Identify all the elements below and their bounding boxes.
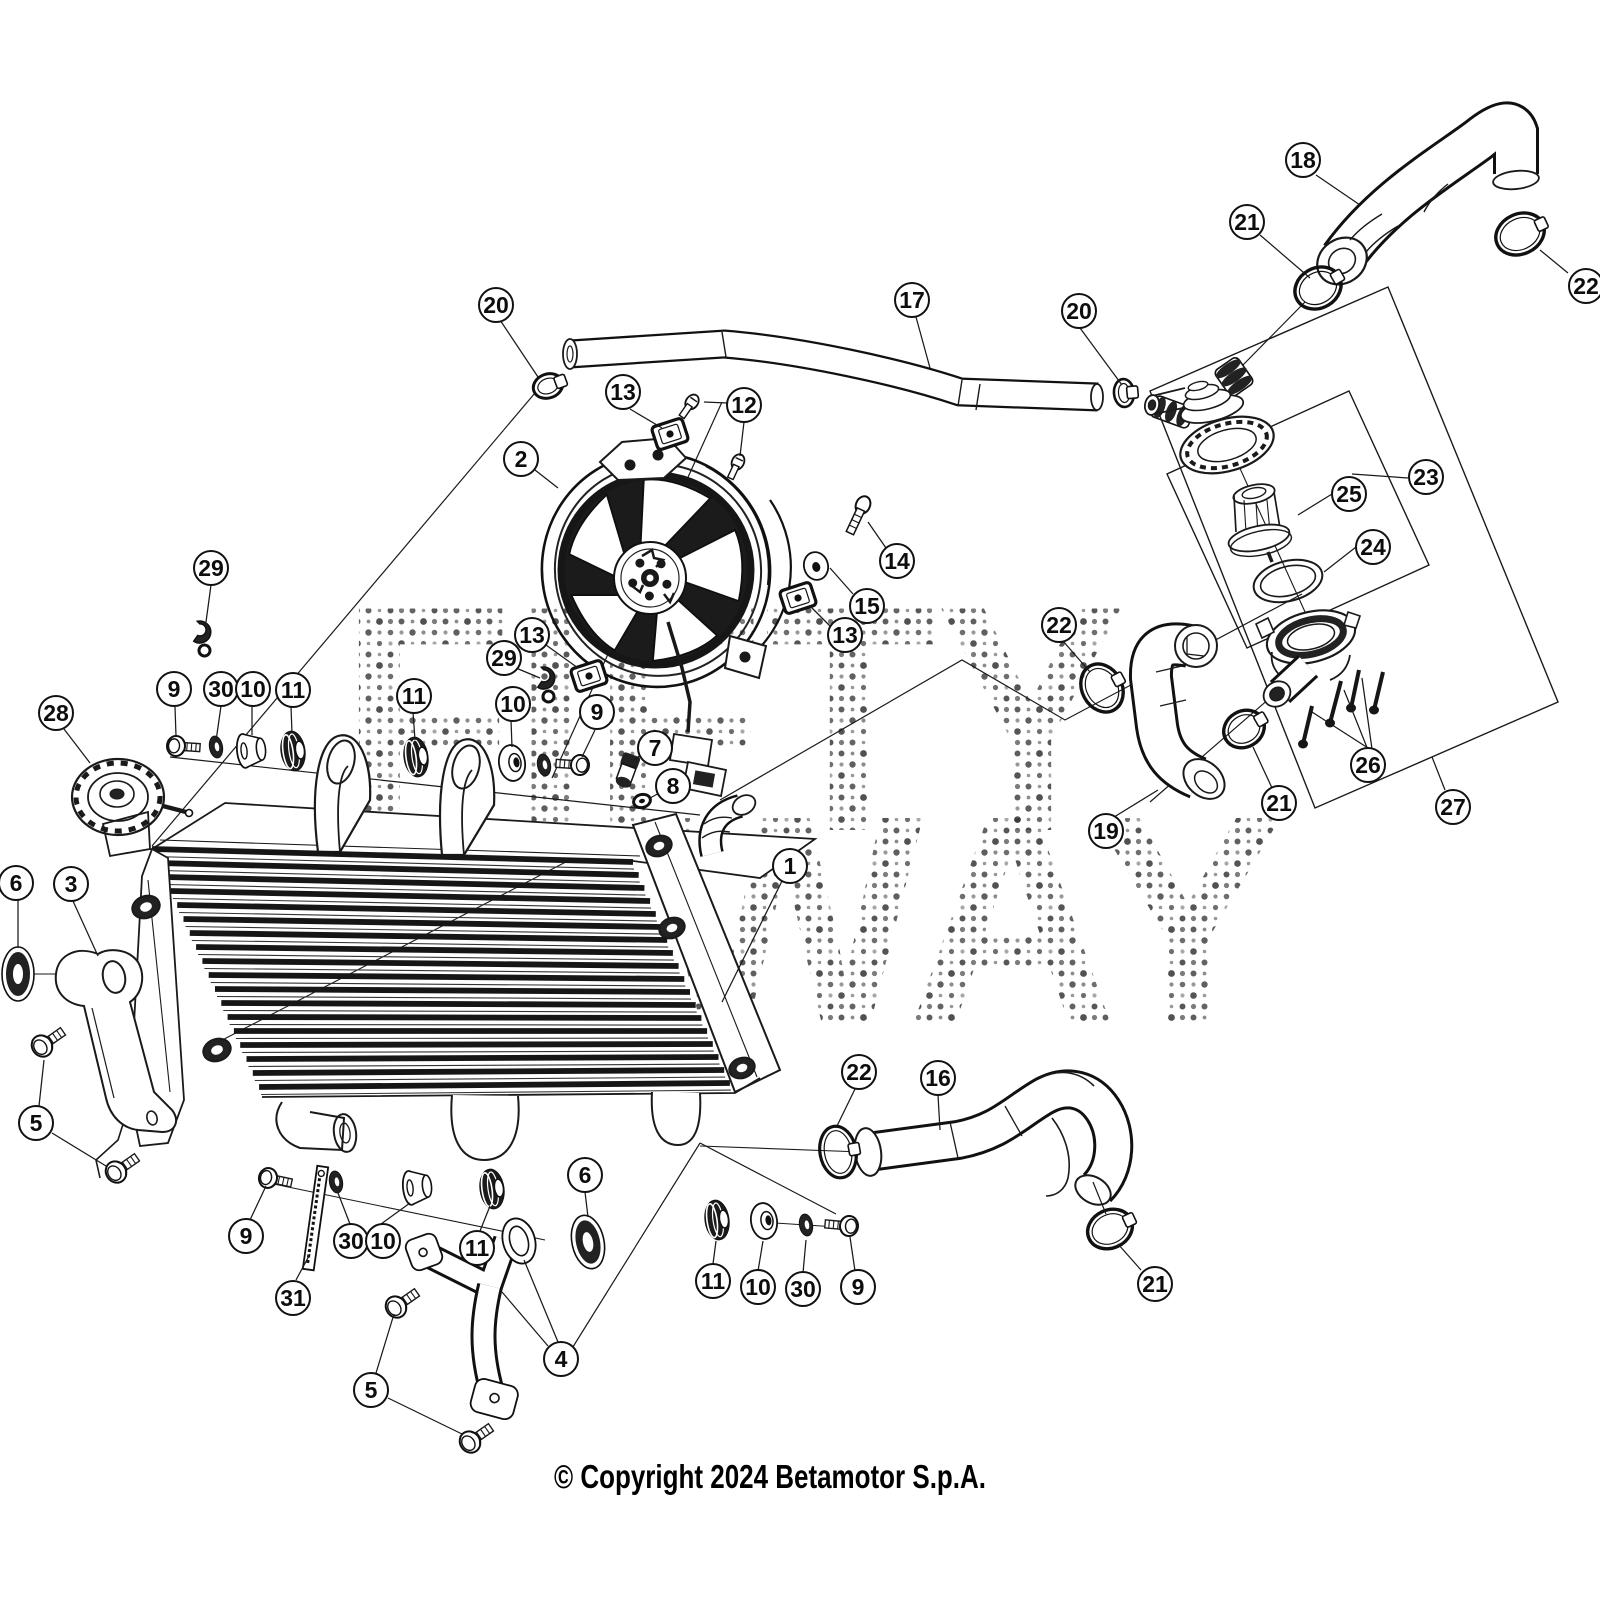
svg-text:11: 11 [281,677,306,703]
svg-text:6: 6 [579,1162,592,1188]
svg-text:11: 11 [701,1268,726,1294]
svg-text:14: 14 [884,548,910,574]
svg-text:11: 11 [465,1235,490,1261]
svg-text:12: 12 [731,392,757,418]
svg-text:17: 17 [899,287,925,313]
svg-text:7: 7 [649,735,662,761]
svg-text:25: 25 [1336,481,1362,507]
svg-text:10: 10 [370,1228,396,1254]
svg-text:30: 30 [338,1228,364,1254]
svg-text:13: 13 [832,622,858,648]
svg-text:13: 13 [519,622,545,648]
svg-text:9: 9 [240,1223,253,1249]
svg-text:1: 1 [784,853,797,879]
svg-text:3: 3 [65,871,78,897]
svg-text:8: 8 [667,773,680,799]
svg-text:10: 10 [745,1274,771,1300]
svg-text:19: 19 [1093,818,1119,844]
svg-text:13: 13 [610,379,636,405]
svg-text:20: 20 [483,292,509,318]
svg-text:11: 11 [402,683,427,709]
svg-text:23: 23 [1413,464,1439,490]
svg-text:10: 10 [240,676,266,702]
svg-text:30: 30 [208,676,234,702]
svg-text:20: 20 [1066,298,1092,324]
svg-text:22: 22 [1573,273,1599,299]
svg-text:2: 2 [515,446,528,472]
svg-text:29: 29 [198,555,224,581]
svg-text:5: 5 [30,1110,43,1136]
svg-text:21: 21 [1234,209,1260,235]
svg-text:16: 16 [925,1065,951,1091]
svg-text:9: 9 [168,676,181,702]
svg-text:27: 27 [1440,794,1466,820]
svg-text:30: 30 [790,1276,816,1302]
svg-text:22: 22 [846,1059,872,1085]
svg-text:5: 5 [365,1377,378,1403]
svg-text:26: 26 [1355,752,1381,778]
svg-text:28: 28 [43,700,69,726]
svg-text:4: 4 [555,1346,568,1372]
svg-text:21: 21 [1142,1271,1168,1297]
svg-text:21: 21 [1266,790,1292,816]
svg-text:15: 15 [854,593,880,619]
svg-text:9: 9 [852,1274,865,1300]
svg-text:6: 6 [10,870,23,896]
svg-text:10: 10 [500,691,526,717]
svg-text:29: 29 [491,645,517,671]
svg-text:© Copyright 2024 Betamotor S.p: © Copyright 2024 Betamotor S.p.A. [554,1458,986,1495]
svg-text:18: 18 [1290,147,1316,173]
svg-text:22: 22 [1046,612,1072,638]
svg-text:31: 31 [280,1285,306,1311]
svg-text:9: 9 [591,699,604,725]
svg-text:24: 24 [1360,534,1386,560]
